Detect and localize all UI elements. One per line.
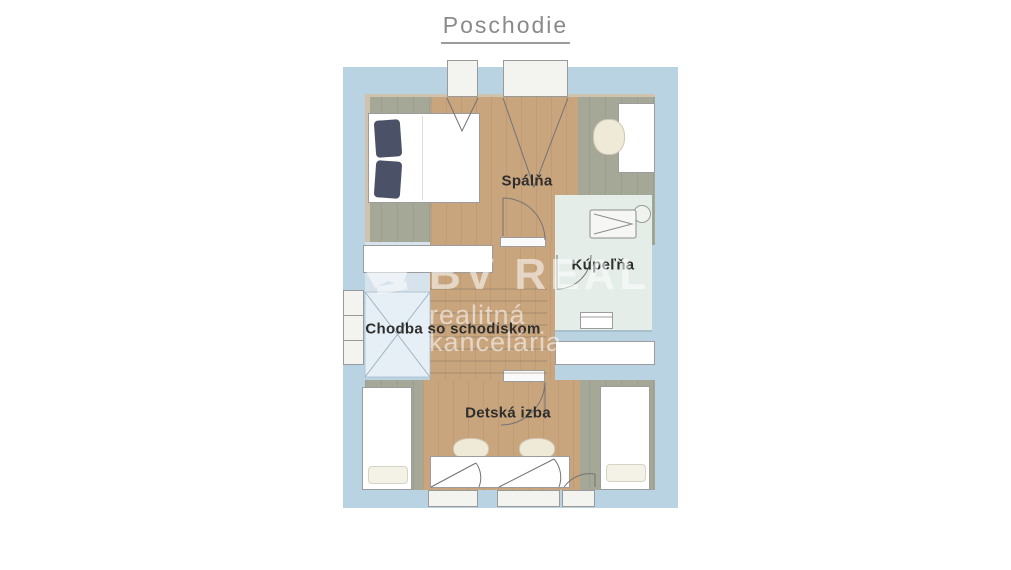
bed-duvet-fold (422, 116, 423, 200)
room-label-bedroom: Spálňa (502, 173, 553, 190)
double-bed (368, 113, 480, 203)
kids-wardrobe (555, 341, 655, 365)
roof-window-bottom-3 (562, 490, 595, 507)
side-window-left (343, 290, 364, 365)
roof-window-top-left (447, 60, 478, 97)
roof-window-bottom-2 (497, 490, 560, 507)
kids-desk (430, 456, 570, 488)
roof-window-top-right (503, 60, 568, 97)
kids-bed-left (362, 387, 412, 490)
room-label-hallway: Chodba so schodiskom (365, 321, 540, 338)
page-title-wrap: Poschodie (0, 12, 1011, 44)
bedroom-chair (593, 119, 625, 155)
kids-bed-right (600, 386, 650, 490)
roof-window-bottom-1 (428, 490, 478, 507)
floor-plan-page: Poschodie (0, 0, 1011, 570)
kids-bed-pillow (368, 466, 408, 484)
bed-pillow (374, 119, 403, 158)
kids-bed-pillow (606, 464, 646, 482)
bathroom-toilet (580, 312, 613, 329)
room-label-bathroom: Kúpeľňa (572, 257, 635, 274)
bed-pillow (374, 160, 403, 199)
floor-plan-canvas: Spálňa Kúpeľňa Chodba so schodiskom Dets… (343, 67, 678, 508)
bathroom-sink (633, 205, 651, 223)
hallway-door-threshold (500, 237, 546, 247)
window-pane-divider (344, 340, 363, 341)
hallway-wardrobe (363, 245, 493, 273)
kids-door-threshold (503, 370, 545, 382)
page-title: Poschodie (441, 12, 570, 44)
room-label-kids-room: Detská izba (465, 405, 551, 422)
window-pane-divider (344, 315, 363, 316)
